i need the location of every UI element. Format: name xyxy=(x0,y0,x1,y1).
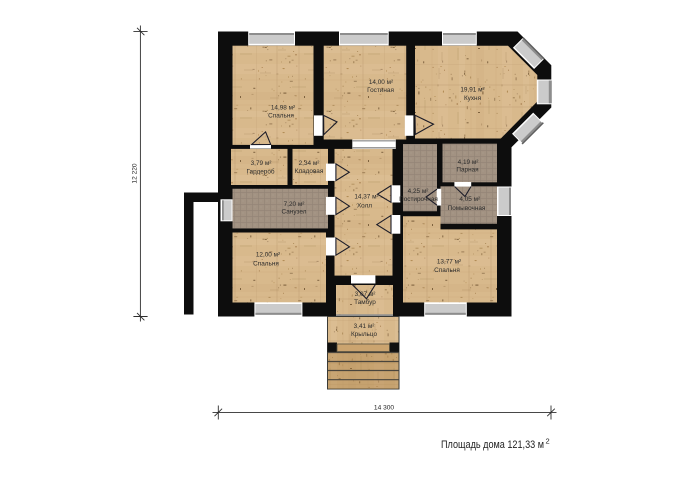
svg-text:Спальня: Спальня xyxy=(434,267,460,274)
svg-text:Гардероб: Гардероб xyxy=(246,167,274,175)
svg-text:Парная: Парная xyxy=(456,167,479,174)
svg-text:7,20 м²: 7,20 м² xyxy=(284,201,305,208)
svg-text:14,37 м²: 14,37 м² xyxy=(354,193,378,200)
svg-text:13,77 м²: 13,77 м² xyxy=(437,258,461,265)
svg-text:Постирочная: Постирочная xyxy=(399,196,438,203)
svg-text:3,07 м²: 3,07 м² xyxy=(355,291,376,298)
svg-text:3,41 м²: 3,41 м² xyxy=(354,323,375,330)
svg-text:4,19 м²: 4,19 м² xyxy=(458,159,479,166)
svg-text:19,91 м²: 19,91 м² xyxy=(460,87,484,94)
svg-text:Спальня: Спальня xyxy=(268,112,294,119)
svg-text:Тамбур: Тамбур xyxy=(354,298,376,306)
svg-text:Помывочная: Помывочная xyxy=(448,205,486,212)
svg-text:Крыльцо: Крыльцо xyxy=(351,331,378,338)
svg-text:Площадь дома 121,33 м: Площадь дома 121,33 м xyxy=(441,439,544,451)
svg-text:Холл: Холл xyxy=(357,203,372,210)
svg-text:14 300: 14 300 xyxy=(374,405,395,412)
svg-text:2: 2 xyxy=(546,437,550,446)
svg-text:4,05 м²: 4,05 м² xyxy=(459,196,480,203)
svg-text:Кухня: Кухня xyxy=(464,95,482,102)
svg-text:12,00 м²: 12,00 м² xyxy=(256,252,280,259)
svg-text:Кладовая: Кладовая xyxy=(295,168,324,175)
svg-text:2,34 м²: 2,34 м² xyxy=(299,160,320,167)
svg-text:Спальня: Спальня xyxy=(253,261,279,268)
svg-text:Гостиная: Гостиная xyxy=(367,87,394,94)
svg-text:14,98 м²: 14,98 м² xyxy=(271,105,295,112)
svg-text:14,00 м²: 14,00 м² xyxy=(369,79,393,86)
svg-text:3,79 м²: 3,79 м² xyxy=(251,160,272,167)
svg-text:12 220: 12 220 xyxy=(131,163,138,184)
svg-text:Санузел: Санузел xyxy=(282,209,307,216)
svg-text:4,25 м²: 4,25 м² xyxy=(408,188,429,195)
